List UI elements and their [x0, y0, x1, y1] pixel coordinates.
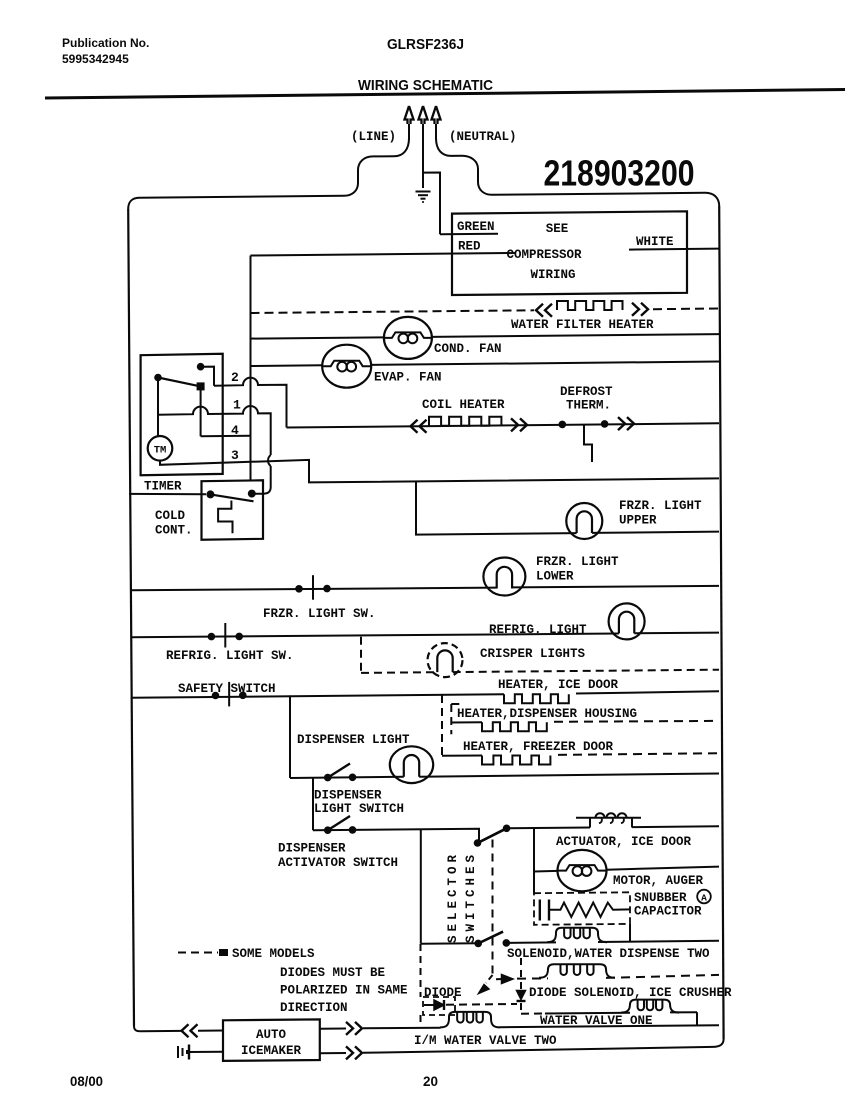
svg-text:Publication No.: Publication No. — [62, 36, 149, 50]
svg-text:(NEUTRAL): (NEUTRAL) — [449, 130, 517, 144]
svg-text:GLRSF236J: GLRSF236J — [387, 37, 464, 53]
svg-text:CAPACITOR: CAPACITOR — [634, 905, 702, 919]
svg-text:DEFROST: DEFROST — [560, 385, 613, 399]
svg-text:SOLENOID,WATER DISPENSE TWO: SOLENOID,WATER DISPENSE TWO — [507, 947, 710, 961]
svg-text:1: 1 — [233, 398, 241, 413]
svg-text:FRZR. LIGHT: FRZR. LIGHT — [619, 499, 702, 513]
svg-text:I/M WATER VALVE TWO: I/M WATER VALVE TWO — [414, 1034, 557, 1048]
svg-text:HEATER, FREEZER DOOR: HEATER, FREEZER DOOR — [463, 740, 614, 754]
svg-text:CRISPER LIGHTS: CRISPER LIGHTS — [480, 647, 586, 661]
svg-text:COND. FAN: COND. FAN — [434, 342, 502, 356]
svg-text:ACTUATOR, ICE DOOR: ACTUATOR, ICE DOOR — [556, 835, 692, 849]
svg-text:REFRIG. LIGHT: REFRIG. LIGHT — [489, 623, 587, 637]
svg-text:DIODE SOLENOID, ICE CRUSHER: DIODE SOLENOID, ICE CRUSHER — [529, 986, 732, 1000]
svg-text:TM: TM — [154, 445, 167, 457]
svg-text:FRZR. LIGHT SW.: FRZR. LIGHT SW. — [263, 607, 376, 621]
svg-text:RED: RED — [458, 240, 481, 254]
svg-text:(LINE): (LINE) — [351, 130, 396, 144]
svg-text:A: A — [701, 893, 707, 904]
svg-text:WIRING SCHEMATIC: WIRING SCHEMATIC — [358, 77, 493, 94]
svg-text:THERM.: THERM. — [566, 399, 611, 413]
svg-text:EVAP. FAN: EVAP. FAN — [374, 371, 442, 385]
svg-text:POLARIZED IN SAME: POLARIZED IN SAME — [280, 984, 408, 998]
svg-text:MOTOR, AUGER: MOTOR, AUGER — [613, 874, 704, 888]
svg-text:DISPENSER: DISPENSER — [278, 842, 346, 856]
svg-text:REFRIG. LIGHT SW.: REFRIG. LIGHT SW. — [166, 649, 294, 663]
svg-text:218903200: 218903200 — [544, 153, 695, 194]
svg-text:WATER FILTER HEATER: WATER FILTER HEATER — [511, 318, 654, 332]
svg-text:SAFETY SWITCH: SAFETY SWITCH — [178, 682, 276, 696]
svg-text:LIGHT SWITCH: LIGHT SWITCH — [314, 802, 404, 816]
svg-text:20: 20 — [423, 1073, 438, 1089]
svg-text:SWITCHES: SWITCHES — [464, 851, 478, 943]
svg-text:WHITE: WHITE — [636, 235, 674, 249]
svg-text:5995342945: 5995342945 — [62, 52, 129, 66]
svg-text:DISPENSER LIGHT: DISPENSER LIGHT — [297, 733, 410, 747]
svg-text:UPPER: UPPER — [619, 514, 657, 528]
svg-text:TIMER: TIMER — [144, 480, 182, 494]
svg-text:DIRECTION: DIRECTION — [280, 1001, 348, 1015]
svg-text:DIODES MUST BE: DIODES MUST BE — [280, 966, 385, 980]
svg-text:AUTO: AUTO — [256, 1028, 287, 1042]
svg-text:COMPRESSOR: COMPRESSOR — [506, 248, 582, 262]
svg-text:DISPENSER: DISPENSER — [314, 789, 382, 803]
svg-text:WIRING: WIRING — [530, 268, 575, 282]
svg-text:HEATER, ICE DOOR: HEATER, ICE DOOR — [498, 678, 619, 692]
svg-text:ICEMAKER: ICEMAKER — [241, 1044, 302, 1058]
svg-text:LOWER: LOWER — [536, 570, 574, 584]
svg-text:ACTIVATOR SWITCH: ACTIVATOR SWITCH — [278, 856, 398, 870]
svg-text:3: 3 — [231, 448, 239, 463]
svg-text:HEATER,DISPENSER HOUSING: HEATER,DISPENSER HOUSING — [457, 707, 637, 721]
svg-text:COLD: COLD — [155, 509, 186, 523]
svg-text:08/00: 08/00 — [70, 1073, 103, 1089]
svg-text:2: 2 — [231, 370, 239, 385]
svg-text:SNUBBER: SNUBBER — [634, 891, 687, 905]
svg-text:4: 4 — [231, 423, 239, 438]
svg-text:SOME MODELS: SOME MODELS — [232, 947, 315, 961]
svg-text:SEE: SEE — [546, 222, 569, 236]
svg-text:SELECTOR: SELECTOR — [446, 851, 460, 943]
svg-text:FRZR. LIGHT: FRZR. LIGHT — [536, 555, 619, 569]
svg-text:CONT.: CONT. — [155, 524, 193, 538]
svg-text:GREEN: GREEN — [457, 220, 495, 234]
svg-text:COIL HEATER: COIL HEATER — [422, 398, 505, 412]
